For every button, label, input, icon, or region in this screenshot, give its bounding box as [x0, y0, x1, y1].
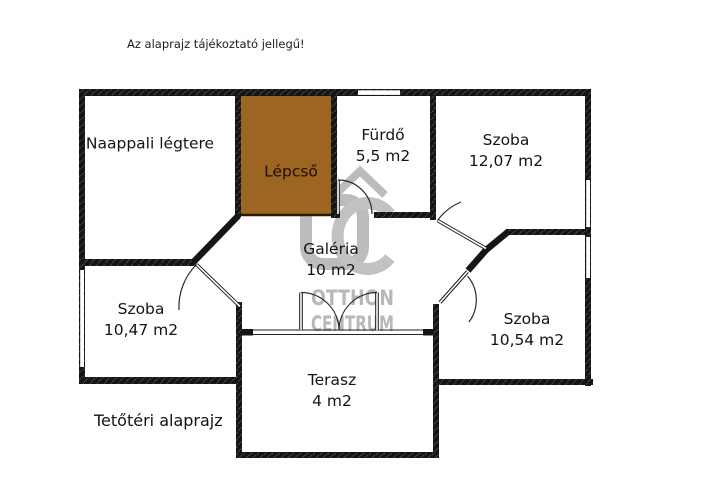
room-area: 10 m2: [303, 260, 359, 281]
room-name: Lépcső: [264, 162, 318, 183]
room-label-szoba-felso: Szoba 12,07 m2: [469, 130, 543, 172]
stairs-area: [239, 93, 333, 215]
room-area: 4 m2: [308, 391, 356, 412]
window-right-upper: [586, 180, 590, 227]
room-area: 10,54 m2: [490, 330, 564, 351]
disclaimer-note: Az alaprajz tájékoztató jellegű!: [127, 37, 305, 51]
room-name: Fürdő: [356, 125, 411, 146]
room-label-lepcso: Lépcső: [264, 162, 318, 183]
window-right-lower: [586, 237, 590, 278]
room-label-szoba-bal: Szoba 10,47 m2: [104, 299, 178, 341]
floorplan-caption: Tetőtéri alaprajz: [94, 411, 223, 430]
room-name: Szoba: [490, 309, 564, 330]
room-name: Szoba: [469, 130, 543, 151]
watermark-line1: OTTHON: [311, 286, 394, 310]
room-name: Galéria: [303, 239, 359, 260]
room-area: 12,07 m2: [469, 151, 543, 172]
window-left: [80, 270, 84, 367]
room-area: 10,47 m2: [104, 320, 178, 341]
door-arc-room-bottom-right: [468, 276, 477, 322]
watermark-line2: CENTRUM: [311, 312, 394, 336]
room-name: Szoba: [104, 299, 178, 320]
room-label-szoba-jobb: Szoba 10,54 m2: [490, 309, 564, 351]
room-name: Terasz: [308, 370, 356, 391]
door-arc-room-top-right: [438, 202, 462, 221]
floorplan-canvas: OTTHON CENTRUM: [0, 0, 706, 499]
room-label-terasz: Terasz 4 m2: [308, 370, 356, 412]
door-arc-room-left: [179, 265, 197, 311]
room-label-galeria: Galéria 10 m2: [303, 239, 359, 281]
room-name: Naappali légtere: [86, 134, 214, 155]
window-top: [358, 90, 400, 95]
room-area: 5,5 m2: [356, 146, 411, 167]
room-label-naappali: Naappali légtere: [86, 134, 214, 155]
room-label-furdo: Fürdő 5,5 m2: [356, 125, 411, 167]
